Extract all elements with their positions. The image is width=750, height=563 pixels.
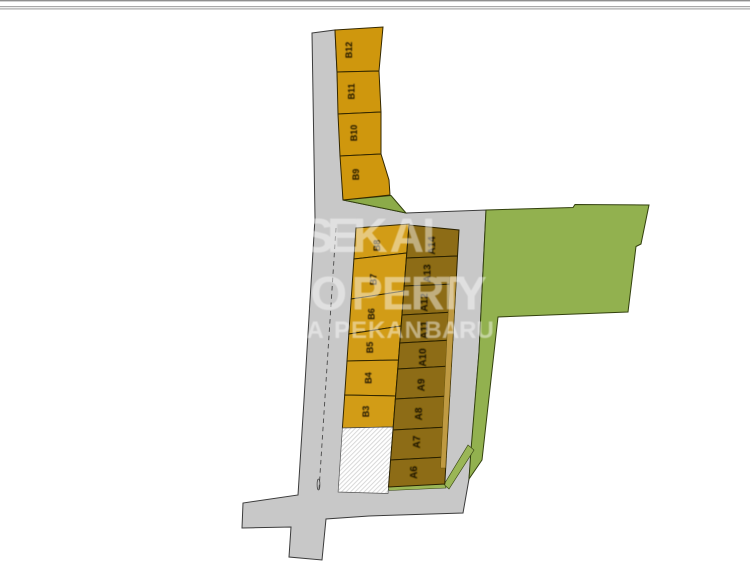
svg-text:A9: A9	[417, 378, 428, 391]
svg-text:PROPERTY: PROPERTY	[243, 267, 487, 320]
svg-text:PEKAN: PEKAN	[334, 317, 423, 344]
svg-text:A: A	[307, 317, 324, 344]
svg-text:BARU: BARU	[425, 317, 494, 344]
svg-text:B10: B10	[349, 125, 359, 142]
svg-text:A7: A7	[412, 435, 423, 448]
svg-text:B12: B12	[344, 42, 354, 59]
svg-text:SEKAI: SEKAI	[302, 210, 436, 263]
svg-text:B3: B3	[361, 406, 371, 418]
svg-text:B9: B9	[351, 169, 361, 181]
svg-text:A6: A6	[409, 466, 420, 479]
svg-text:A10: A10	[418, 348, 429, 367]
svg-text:A8: A8	[414, 407, 425, 420]
svg-text:B11: B11	[347, 83, 357, 99]
svg-text:B4: B4	[364, 372, 374, 384]
